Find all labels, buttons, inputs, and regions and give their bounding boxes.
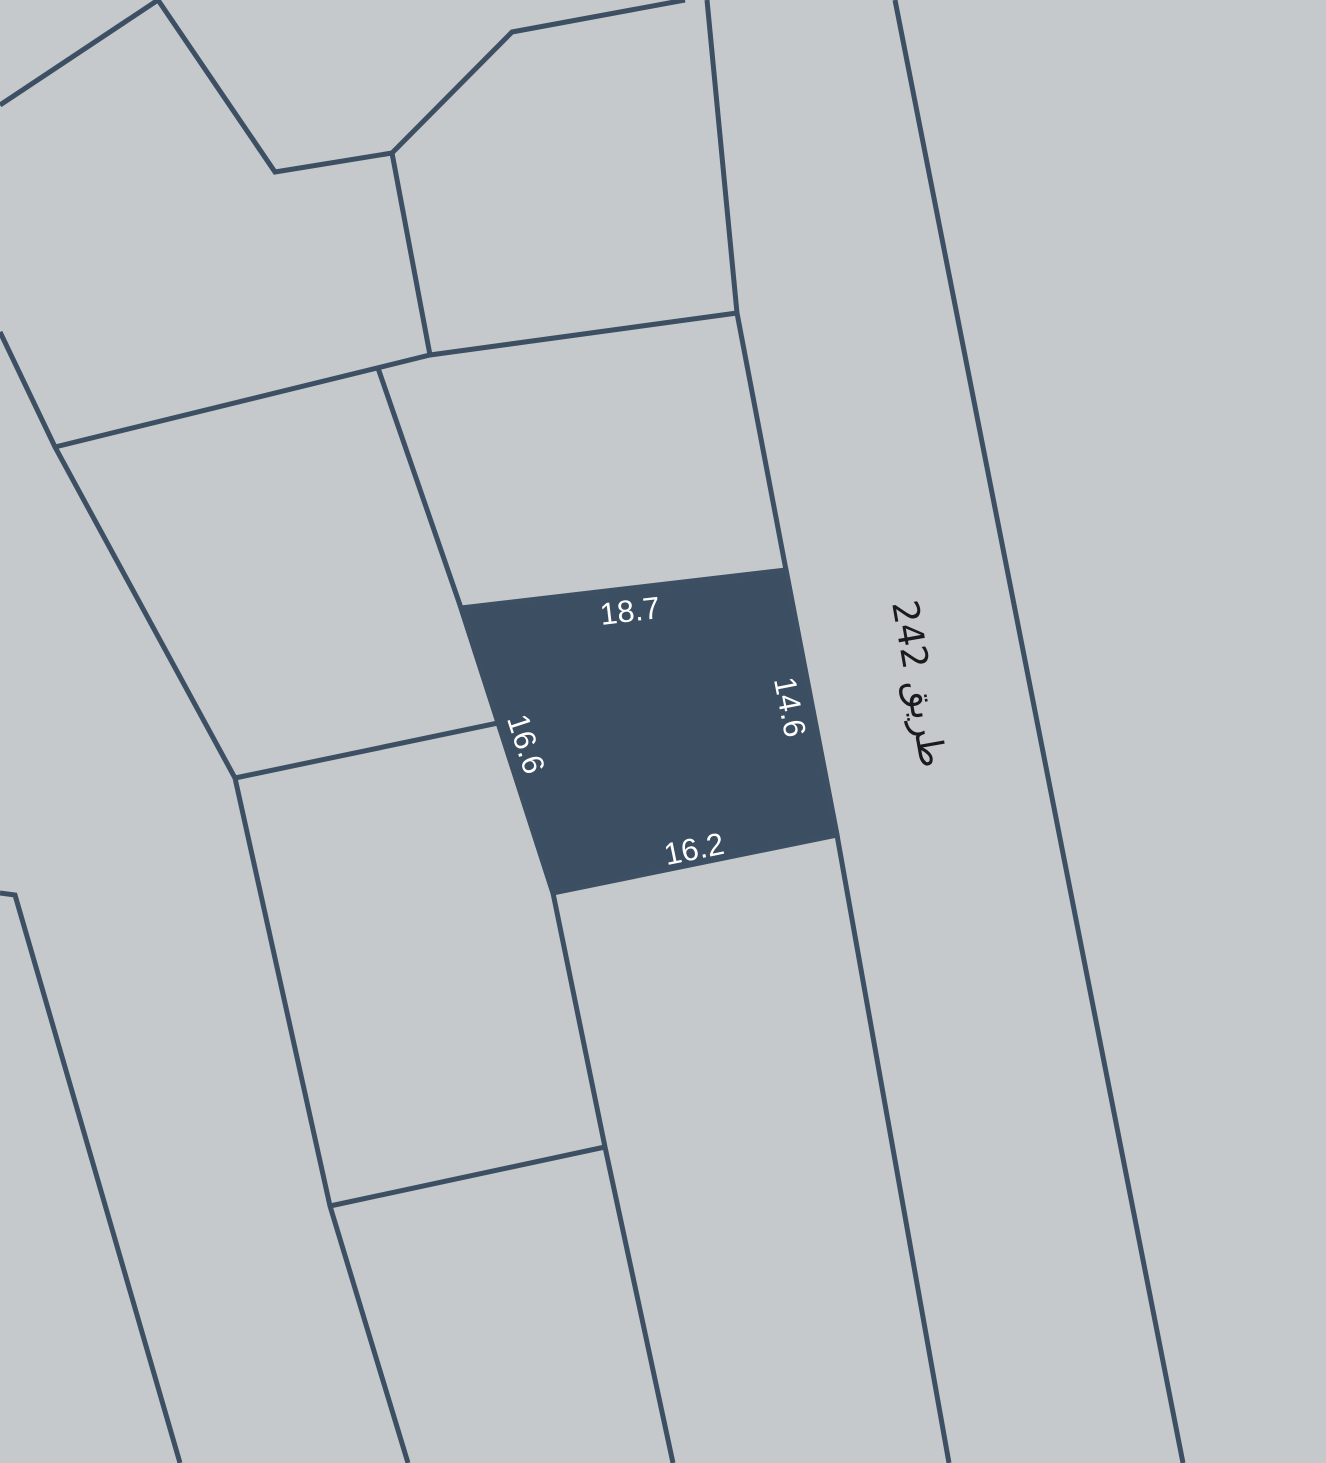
map-canvas[interactable]: 18.7 14.6 16.6 16.2 (0, 0, 1326, 1463)
cadastral-map[interactable]: 18.7 14.6 16.6 16.2 طريق 242 (0, 0, 1326, 1463)
dimension-label-top: 18.7 (598, 590, 662, 632)
